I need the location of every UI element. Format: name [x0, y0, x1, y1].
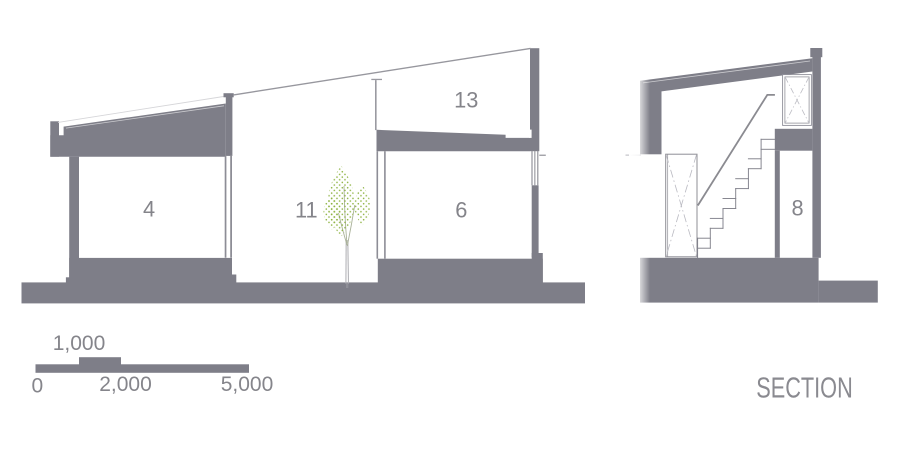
svg-text:0: 0 — [32, 375, 44, 398]
svg-text:5,000: 5,000 — [221, 373, 274, 396]
svg-text:11: 11 — [295, 197, 318, 222]
svg-text:13: 13 — [454, 87, 478, 112]
svg-text:SECTION: SECTION — [756, 372, 853, 404]
svg-text:2,000: 2,000 — [99, 373, 152, 396]
svg-text:1,000: 1,000 — [53, 332, 106, 355]
svg-text:4: 4 — [143, 196, 155, 221]
svg-text:8: 8 — [792, 196, 804, 221]
svg-text:6: 6 — [455, 197, 467, 222]
